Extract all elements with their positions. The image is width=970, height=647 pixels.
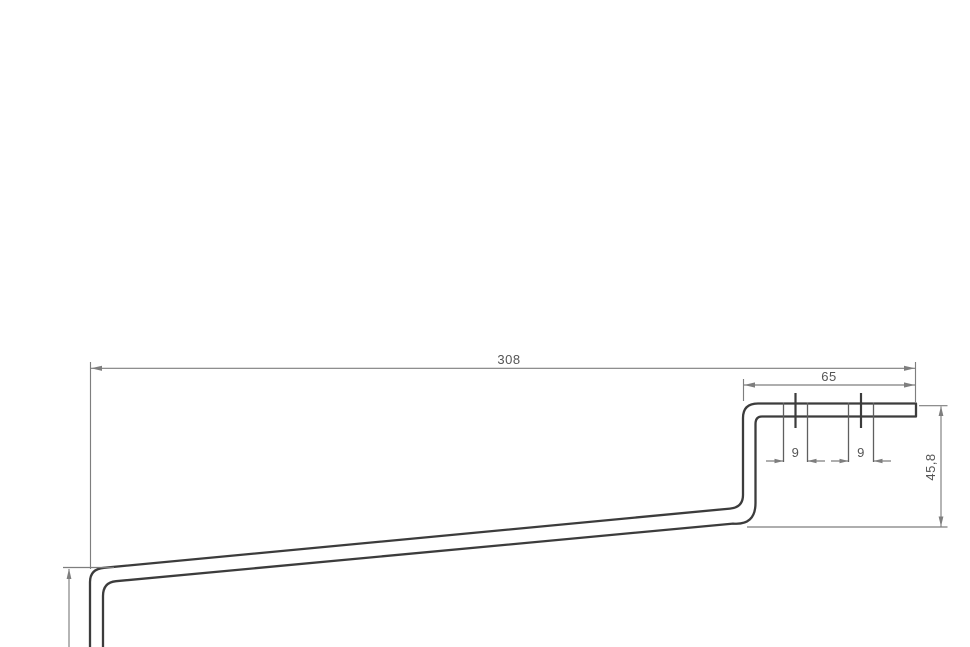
part-profile <box>90 393 916 647</box>
dimension-flange-drop-height: 45,8 <box>747 406 948 527</box>
dimension-hole2-width: 9 <box>831 445 891 463</box>
arrowhead-right <box>808 459 817 463</box>
arrowhead-left <box>744 382 755 387</box>
drawing-canvas: 308 65 9 9 <box>0 0 970 647</box>
dim-label-flange-drop-height: 45,8 <box>923 453 938 480</box>
dimension-flange-length: 65 <box>744 369 916 401</box>
arrowhead-right <box>904 382 915 387</box>
arrowhead-left <box>775 459 784 463</box>
arrowhead-bottom <box>939 517 944 527</box>
dim-label-hole2-width: 9 <box>857 445 865 460</box>
dimension-hole1-width: 9 <box>766 445 825 463</box>
arrowhead-left <box>91 366 102 371</box>
dim-label-hole1-width: 9 <box>792 445 800 460</box>
arrowhead-top <box>67 569 72 580</box>
dim-label-flange-length: 65 <box>821 369 836 384</box>
arrowhead-top <box>939 406 944 416</box>
arrowhead-left <box>840 459 849 463</box>
dim-label-overall-length: 308 <box>497 352 520 367</box>
technical-drawing: 308 65 9 9 <box>0 0 970 647</box>
arrowhead-right <box>904 366 915 371</box>
part-outline <box>90 404 916 647</box>
arrowhead-right <box>874 459 883 463</box>
